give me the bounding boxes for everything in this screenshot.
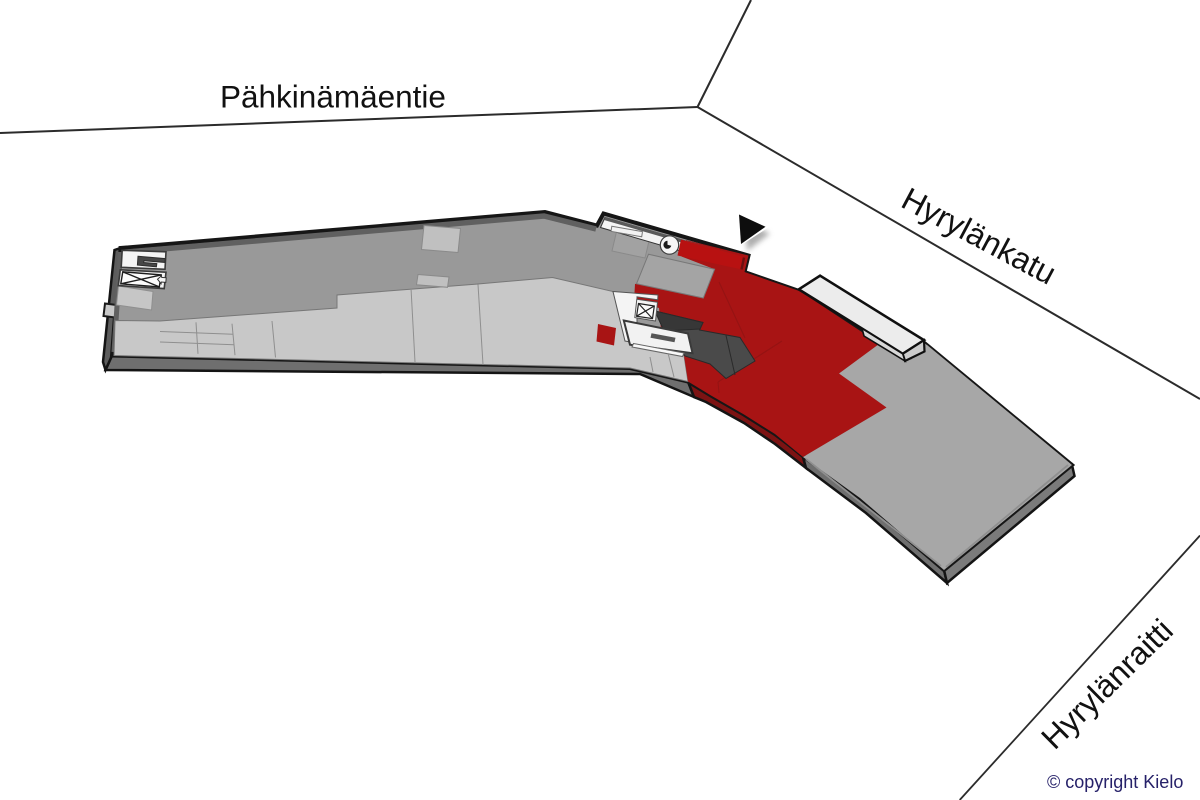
svg-text:© copyright Kielo: © copyright Kielo bbox=[1047, 772, 1183, 792]
svg-text:Pähkinämäentie: Pähkinämäentie bbox=[220, 79, 446, 115]
